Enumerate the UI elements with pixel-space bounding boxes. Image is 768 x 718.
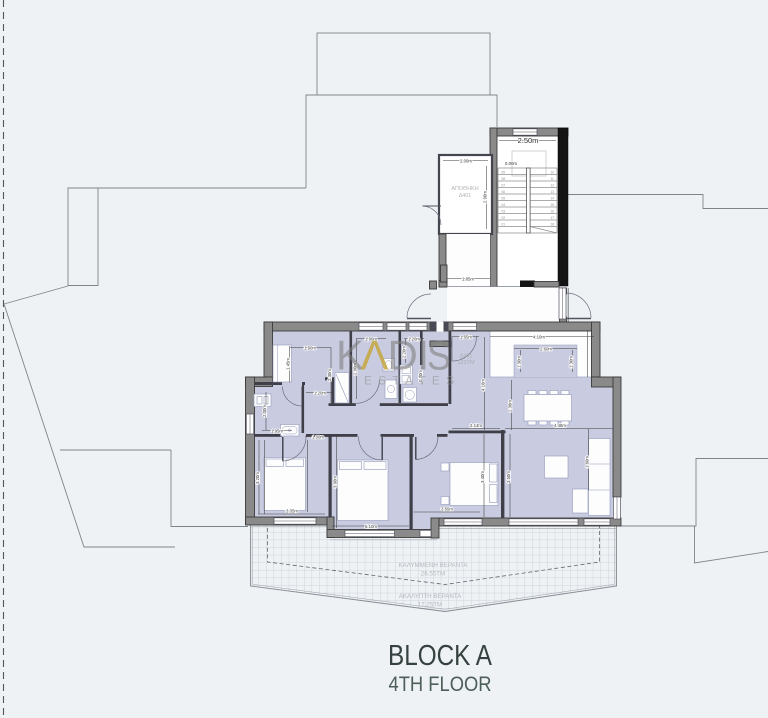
svg-text:3.20m: 3.20m (255, 472, 260, 484)
svg-text:123ΤΜ: 123ΤΜ (457, 360, 475, 366)
svg-text:04: 04 (502, 203, 506, 207)
svg-text:02: 02 (502, 216, 506, 220)
svg-text:Λ: Λ (361, 332, 389, 379)
svg-text:ESTATES: ESTATES (364, 374, 460, 388)
svg-text:ΑΠΟΘΗΚΗ: ΑΠΟΘΗΚΗ (451, 186, 478, 192)
svg-text:1.20m: 1.20m (314, 390, 326, 395)
svg-text:1.85m: 1.85m (462, 277, 474, 282)
svg-text:1.95m: 1.95m (271, 428, 283, 433)
svg-text:07: 07 (502, 184, 506, 188)
svg-text:17: 17 (551, 216, 555, 220)
svg-text:2.50m: 2.50m (518, 136, 539, 145)
svg-text:2.30m: 2.30m (327, 369, 332, 381)
svg-text:ΚΑΛΥΜΜΕΝΗ ΒΕΡΑΝΤΑ: ΚΑΛΥΜΜΕΝΗ ΒΕΡΑΝΤΑ (398, 562, 468, 569)
svg-text:05: 05 (502, 197, 506, 201)
svg-text:16: 16 (551, 210, 555, 214)
svg-text:1.60m: 1.60m (585, 456, 590, 468)
svg-text:1.30m: 1.30m (569, 356, 574, 368)
svg-text:3.50m: 3.50m (506, 471, 511, 483)
svg-text:2.60m: 2.60m (540, 346, 552, 351)
svg-text:Δ401: Δ401 (459, 354, 472, 360)
svg-text:10: 10 (551, 171, 555, 175)
svg-text:1.00m: 1.00m (312, 434, 324, 439)
svg-text:08: 08 (502, 177, 506, 181)
svg-text:15: 15 (551, 203, 555, 207)
svg-text:01: 01 (502, 223, 506, 227)
svg-text:3.90m: 3.90m (333, 476, 338, 488)
svg-text:18: 18 (551, 223, 555, 227)
svg-text:2.00m: 2.00m (460, 159, 472, 164)
svg-text:0.00m: 0.00m (505, 161, 517, 166)
svg-text:1.30m: 1.30m (517, 356, 522, 368)
svg-text:D: D (388, 332, 418, 379)
svg-text:14: 14 (551, 197, 555, 201)
svg-text:2.38m: 2.38m (508, 400, 513, 412)
svg-text:3.05m: 3.05m (286, 508, 298, 513)
svg-text:1.90m: 1.90m (304, 345, 316, 350)
svg-text:S: S (427, 332, 451, 379)
svg-text:03: 03 (502, 210, 506, 214)
svg-text:4.10m: 4.10m (533, 334, 545, 339)
svg-text:5.10m: 5.10m (365, 524, 377, 529)
svg-text:4.16m: 4.16m (481, 379, 486, 391)
svg-text:Δ401: Δ401 (459, 193, 472, 199)
svg-text:1.45m: 1.45m (286, 358, 291, 370)
svg-text:BLOCK A: BLOCK A (388, 640, 493, 672)
svg-text:3.65m: 3.65m (441, 506, 453, 511)
svg-text:2.00m: 2.00m (262, 405, 267, 417)
svg-text:3.40m: 3.40m (480, 471, 485, 483)
svg-text:06: 06 (502, 190, 506, 194)
svg-text:13: 13 (551, 190, 555, 194)
svg-text:ΑΚΑΛΥΠΤΗ ΒΕΡΑΝΤΑ: ΑΚΑΛΥΠΤΗ ΒΕΡΑΝΤΑ (399, 593, 462, 600)
svg-text:17.25ΤΜ: 17.25ΤΜ (418, 601, 442, 608)
svg-text:26.55ΤΜ: 26.55ΤΜ (421, 571, 445, 578)
svg-text:11: 11 (551, 177, 555, 181)
svg-text:1.65m: 1.65m (460, 334, 472, 339)
svg-text:2.14m: 2.14m (470, 423, 482, 428)
svg-text:2.90m: 2.90m (483, 191, 488, 203)
svg-text:12: 12 (551, 184, 555, 188)
svg-text:4.48m: 4.48m (554, 423, 566, 428)
svg-text:09: 09 (502, 171, 506, 175)
svg-text:4TH FLOOR: 4TH FLOOR (389, 672, 492, 696)
